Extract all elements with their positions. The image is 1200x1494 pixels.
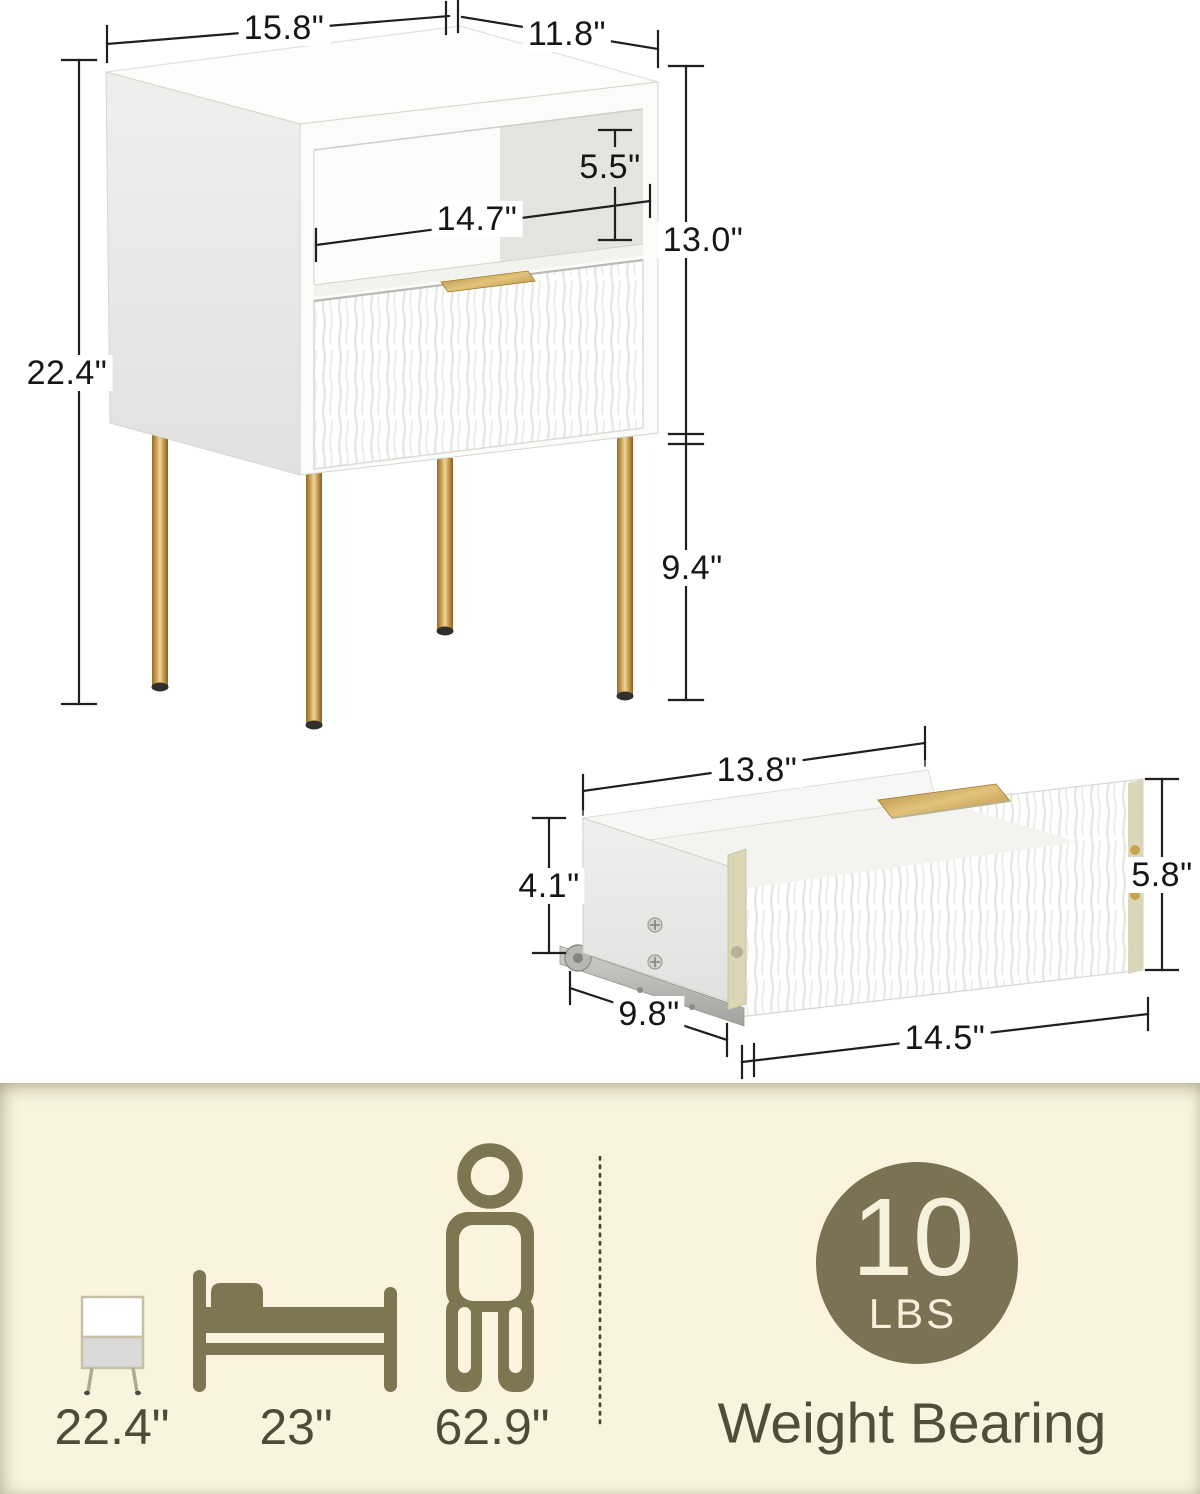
dim-opening-width: 14.7" <box>432 201 523 237</box>
dim-drawer-depth: 9.8" <box>613 996 684 1032</box>
drawer-corner-strip-left <box>728 849 746 1010</box>
dim-drawer-side-height: 4.1" <box>513 868 584 904</box>
person-height-value: 62.9" <box>434 1402 549 1452</box>
nightstand-icon <box>82 1297 143 1395</box>
nightstand-height-value: 22.4" <box>54 1402 169 1452</box>
dim-drawer-front-height: 5.8" <box>1126 857 1197 893</box>
dim-leg-height: 9.4" <box>656 550 727 586</box>
weight-bearing-label: Weight Bearing <box>718 1396 1107 1453</box>
weight-badge-value: 10 <box>852 1183 974 1293</box>
dim-opening-height: 5.5" <box>574 149 645 185</box>
nightstand-side-panel <box>106 72 300 475</box>
dim-drawer-inner-width: 13.8" <box>712 752 803 788</box>
drawer-drawing <box>560 770 1143 1026</box>
product-dimension-infographic: 15.8" 11.8" 5.5" 14.7" 13.0" 22.4" 9.4" … <box>0 0 1200 1494</box>
dim-top-width: 15.8" <box>239 10 330 46</box>
nightstand-drawing <box>106 26 658 730</box>
dim-top-depth: 11.8" <box>523 16 611 52</box>
dim-drawer-front-width: 14.5" <box>900 1020 991 1056</box>
nightstand-legs <box>152 434 634 730</box>
bed-height-value: 23" <box>259 1402 332 1452</box>
dim-cabinet-height: 13.0" <box>658 222 749 258</box>
weight-badge-unit: LBS <box>869 1293 957 1335</box>
size-comparison-banner: 22.4" 23" 62.9" 10 LBS Weight Bearing <box>0 1083 1200 1494</box>
bed-icon <box>193 1270 397 1392</box>
dim-overall-height: 22.4" <box>22 355 113 391</box>
person-icon <box>446 1150 534 1392</box>
